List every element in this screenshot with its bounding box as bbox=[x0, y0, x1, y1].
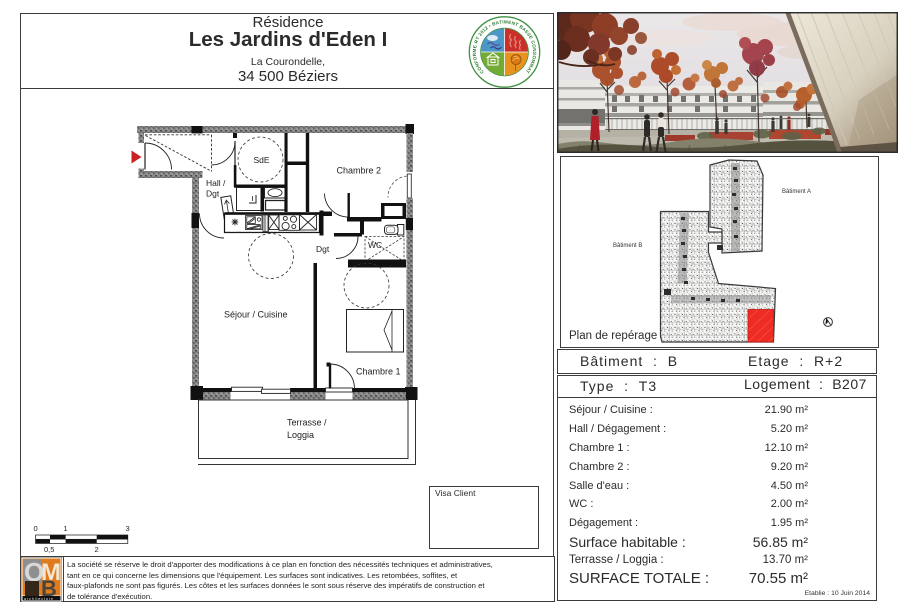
svg-text:0: 0 bbox=[34, 524, 38, 533]
svg-text:Bâtiment B: Bâtiment B bbox=[613, 243, 642, 249]
svg-text:SdE: SdE bbox=[254, 155, 270, 165]
svg-text:Chambre 2: Chambre 2 bbox=[337, 166, 382, 176]
svg-text:WC: WC bbox=[368, 240, 382, 250]
svg-text:Loggia: Loggia bbox=[287, 430, 314, 440]
svg-text:3: 3 bbox=[126, 524, 130, 533]
svg-text:Terrasse /: Terrasse / bbox=[287, 418, 327, 428]
svg-text:1: 1 bbox=[64, 524, 68, 533]
svg-text:0,5: 0,5 bbox=[44, 545, 54, 554]
svg-text:2: 2 bbox=[95, 545, 99, 554]
svg-text:Hall /: Hall / bbox=[206, 178, 226, 188]
svg-text:Séjour / Cuisine: Séjour / Cuisine bbox=[224, 310, 288, 320]
svg-text:Chambre 1: Chambre 1 bbox=[356, 367, 401, 377]
svg-text:a r c h i t e c t u r e: a r c h i t e c t u r e bbox=[24, 597, 53, 601]
svg-text:Bâtiment A: Bâtiment A bbox=[782, 189, 811, 195]
svg-text:Dgt: Dgt bbox=[206, 189, 220, 199]
svg-text:Dgt: Dgt bbox=[316, 244, 330, 254]
